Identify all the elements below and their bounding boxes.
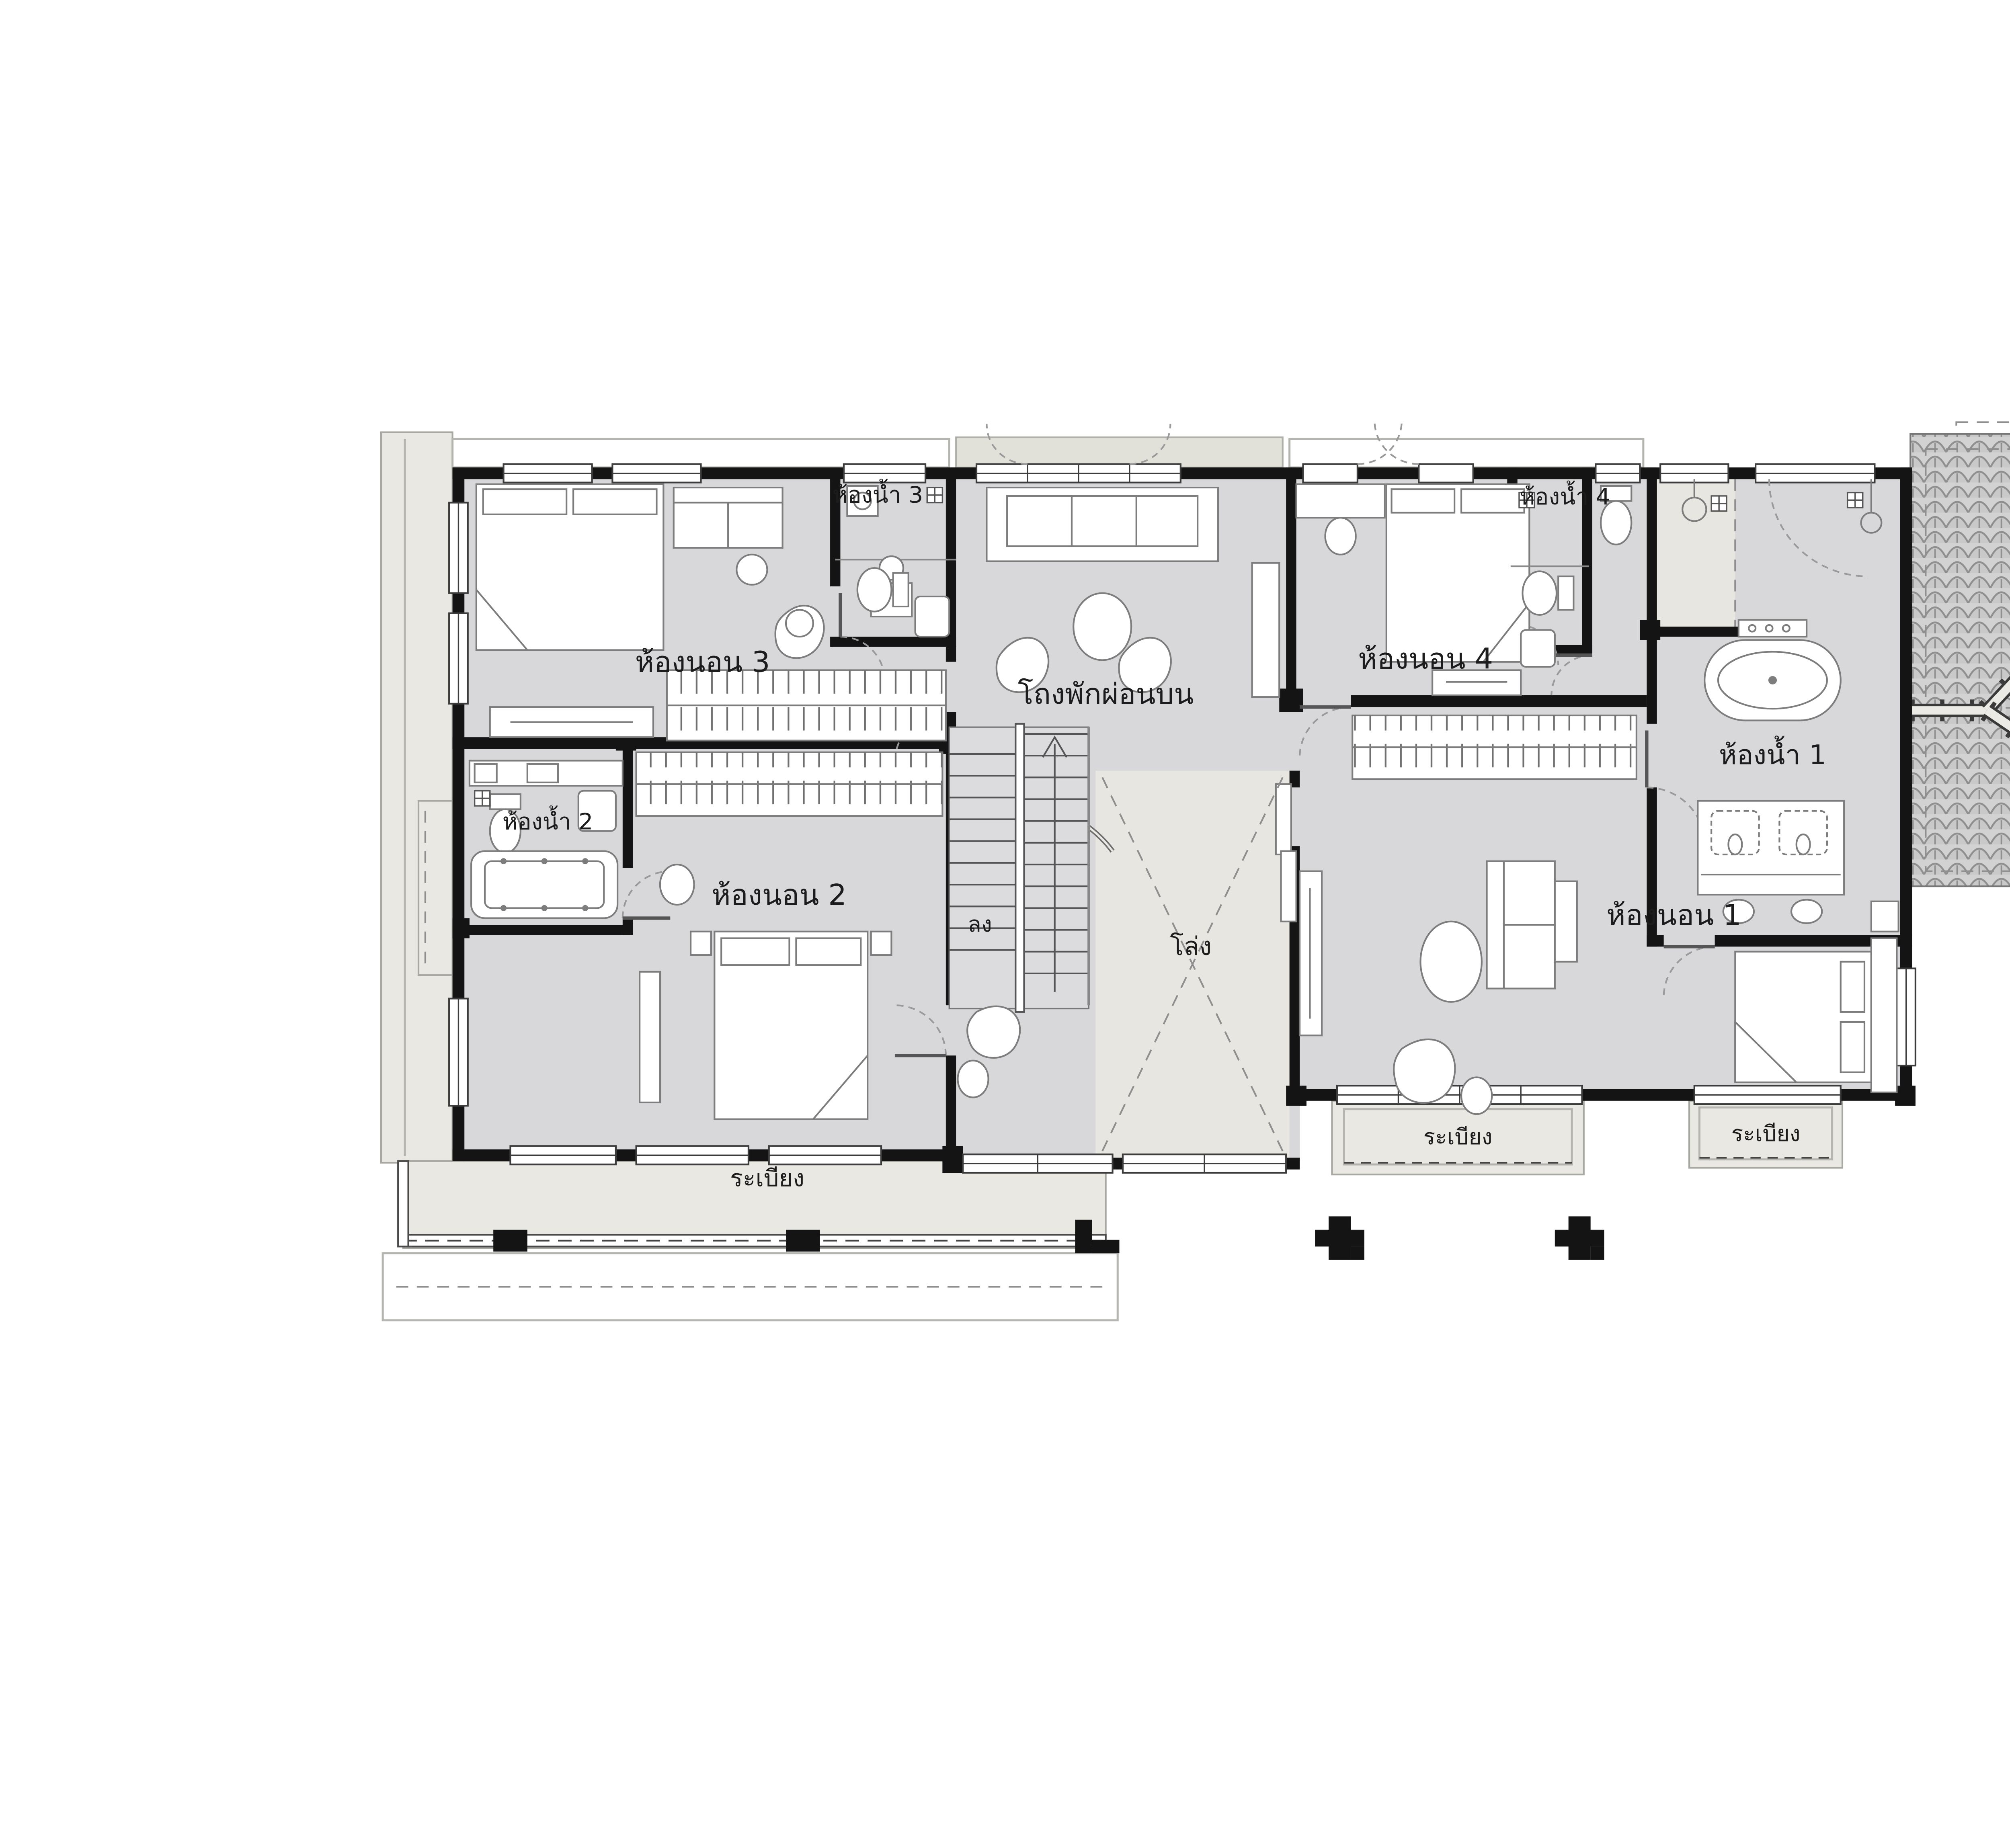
closet-bedroom2 [636, 752, 943, 816]
chaise-bedroom1 [1394, 1039, 1455, 1103]
closet-bedroom3 [667, 670, 946, 740]
window [511, 1146, 616, 1164]
beanbag-landing-1 [967, 1006, 1020, 1058]
balcony-right-label: ระเบียง [1731, 1121, 1801, 1146]
staircase [949, 724, 1089, 1012]
counter-bath2 [470, 761, 623, 786]
balcony-left-label: ระเบียง [1423, 1124, 1493, 1150]
stool-bedroom2 [660, 865, 694, 905]
bath3-label: ห้องน้ำ 3 [833, 479, 923, 508]
coffee-table-lounge [1073, 593, 1131, 660]
left-eave-strip [381, 432, 453, 1163]
bedroom3-label: ห้องนอน 3 [635, 645, 770, 678]
desk-chair-bedroom4 [1325, 518, 1356, 555]
window [1897, 968, 1916, 1065]
bedroom1-slide-door [1276, 784, 1291, 854]
sink-bath4 [1521, 630, 1555, 667]
window [976, 464, 1181, 483]
tv-console-bedroom2 [640, 972, 660, 1102]
sofa-lounge [987, 488, 1218, 561]
hip-roof [1910, 432, 2010, 890]
window [612, 464, 701, 483]
column [1555, 1216, 1604, 1260]
bedroom2-label: ห้องนอน 2 [712, 879, 847, 912]
floor-plan-canvas: ห้องนอน 3 ห้องน้ำ 3 โถงพักผ่อนบน ห้องนอน… [0, 0, 2010, 1848]
bath1-label: ห้องน้ำ 1 [1719, 735, 1826, 770]
railing-post [1075, 1220, 1092, 1253]
window [769, 1146, 881, 1164]
rug-bedroom1 [1420, 922, 1481, 1002]
front-canopy [956, 437, 1282, 467]
railing-post [493, 1230, 527, 1252]
stairs-down-label: ลง [968, 911, 992, 937]
window [449, 999, 468, 1106]
bed-bedroom4 [1386, 484, 1529, 662]
toilet-bath3 [857, 568, 909, 611]
beanbag-landing-2 [958, 1061, 988, 1098]
bed-bedroom3 [476, 484, 663, 650]
void-label: โล่ง [1170, 932, 1212, 961]
bath2-bay [418, 801, 453, 975]
window [1596, 464, 1640, 483]
window [449, 613, 468, 704]
bath2-label: ห้องน้ำ 2 [503, 805, 593, 835]
bed-bedroom2 [691, 932, 891, 1119]
window [1123, 1154, 1286, 1173]
balcony-main-label: ระเบียง [730, 1164, 804, 1192]
side-table-bedroom3 [736, 555, 767, 585]
front-eave-bedroom4 [1290, 439, 1643, 467]
window [963, 1154, 1112, 1173]
railing-post [786, 1230, 820, 1252]
column [1315, 1216, 1364, 1260]
jacuzzi-bath2 [471, 851, 617, 918]
sliding-door-bedroom1 [1337, 1086, 1582, 1104]
window [1694, 1086, 1841, 1104]
window [636, 1146, 749, 1164]
toilet-bath4 [1522, 572, 1573, 615]
desk-bedroom4 [1296, 484, 1385, 518]
window [1756, 464, 1875, 483]
window [844, 464, 925, 483]
lounge-label: โถงพักผ่อนบน [1018, 677, 1194, 710]
bedroom1-label: ห้องนอน 1 [1606, 899, 1741, 932]
window [504, 464, 592, 483]
sink-bath3 [915, 596, 950, 637]
floor-plan-page: ห้องนอน 3 ห้องน้ำ 3 โถงพักผ่อนบน ห้องนอน… [0, 0, 2010, 1848]
front-eave-bedroom3 [453, 439, 950, 467]
console-lounge [1252, 563, 1280, 697]
bath4-label: ห้องน้ำ 4 [1520, 480, 1610, 510]
bedroom4-label: ห้องนอน 4 [1358, 642, 1493, 675]
window [449, 503, 468, 593]
walkin-closet [1352, 715, 1637, 779]
